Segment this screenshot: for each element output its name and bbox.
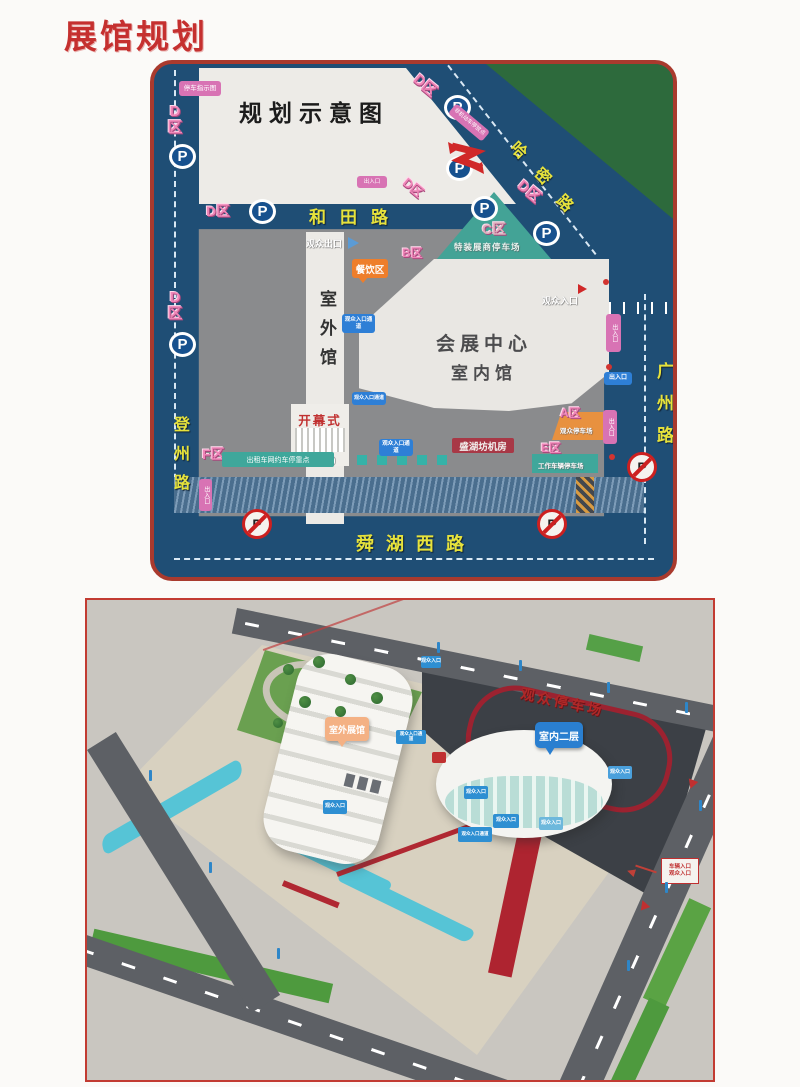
street-parking-band: [174, 477, 644, 513]
entrance-flag-icon: [578, 284, 587, 294]
outdoor-hall-bubble-tail: [337, 740, 347, 747]
road-hami-char3: 路: [552, 188, 580, 216]
indoor-hall-bubble: 室内二层: [535, 722, 583, 748]
gate-tag: 观众入口: [608, 766, 632, 779]
light-pole: [627, 960, 630, 971]
light-pole: [277, 948, 280, 959]
entrance-sign: 车辆入口 观众入口: [661, 858, 699, 884]
verge-green: [586, 634, 643, 662]
road-hami-char1: 哈: [506, 135, 534, 163]
signal-dot: [603, 279, 609, 285]
light-pole: [685, 702, 688, 713]
visitor-exit-label: 观众出口: [306, 237, 342, 250]
entry-channel-tag: 观众入口通道: [352, 392, 386, 405]
schematic-map: 规划示意图 C区 特装展商停车场 室外馆 会展中心 室内馆 开幕式 餐饮区 盛湖…: [150, 60, 677, 581]
light-pole: [209, 862, 212, 873]
gate-tag: 观众入口通道: [396, 730, 426, 744]
tree-icon: [313, 656, 325, 668]
gate-tag-label: 观众入口: [325, 804, 345, 810]
zone-d-label: D区: [167, 290, 183, 322]
zone-a-desc: 观众停车场: [560, 425, 593, 435]
plan-title: 规划示意图: [239, 94, 389, 128]
zone-c-desc: 特装展商停车场: [454, 241, 521, 253]
signal-dot: [606, 364, 612, 370]
convention-center-label: 会展中心 室内馆: [409, 329, 559, 384]
booth-square: [417, 455, 427, 465]
no-parking-icon: P: [537, 509, 567, 539]
no-parking-letter: P: [252, 516, 261, 532]
zone-a-label: A区: [560, 407, 581, 420]
road-shunhu-label: 舜湖西路: [356, 530, 476, 556]
tree-icon: [283, 664, 294, 675]
gate-tag-label: 观众入口: [610, 770, 630, 776]
tree-icon: [273, 718, 283, 728]
catering-tag-tail: [358, 277, 368, 283]
gate-tag: 观众入口通道: [458, 827, 492, 842]
parking-map-tag-label: 停车指示图: [184, 85, 217, 92]
light-pole: [665, 882, 668, 893]
zone-e-label: E区: [541, 442, 561, 455]
gate-tag: 观众入口: [464, 786, 488, 799]
entry-channel-tag: 观众入口通道: [379, 439, 413, 456]
entry-channel-tag: 观众入口通道: [342, 314, 375, 333]
access-tag-label: 出入口: [607, 418, 614, 436]
outdoor-hall-bubble: 室外展馆: [325, 717, 369, 741]
zone-d-label: D区: [167, 104, 183, 136]
access-tag-label: 出入口: [610, 324, 617, 342]
zone-b-label: B区: [402, 247, 423, 260]
light-pole: [437, 642, 440, 653]
zone-f-desc: 出租车网约车停靠点: [247, 455, 310, 465]
entry-channel-label: 观众入口通道: [354, 396, 384, 402]
access-tag-blue: 出入口: [604, 372, 632, 385]
gate-tag-label: 观众入口通道: [460, 832, 490, 837]
visitor-entrance-label: 观众入口: [542, 294, 578, 307]
opening-label: 开幕式: [291, 410, 349, 429]
parking-icon: P: [249, 199, 276, 224]
road-hetian-label: 和田路: [309, 203, 402, 228]
crosswalk: [576, 477, 594, 513]
gate-tag-label: 观众入口: [496, 818, 516, 824]
access-tag: 出入口: [606, 314, 621, 352]
parking-ticks: [609, 302, 677, 314]
road-guangzhou-label: 广州路: [651, 362, 676, 458]
gate-tag: 观众入口: [539, 817, 563, 830]
gate-tag-red: [432, 752, 446, 763]
tree-icon: [299, 696, 311, 708]
booth-square: [377, 455, 387, 465]
tree-icon: [345, 674, 356, 685]
light-pole: [519, 660, 522, 671]
signal-dot: [609, 454, 615, 460]
indoor-hall-bubble-tail: [545, 747, 555, 755]
outdoor-hall-label: 室外馆: [314, 290, 339, 377]
parking-band-tag-label: 出入口: [202, 486, 209, 504]
entrance-sign-line1: 车辆入口: [669, 864, 691, 871]
entry-channel-label: 观众入口通道: [345, 317, 373, 330]
tree-icon: [371, 692, 383, 704]
two-way-arrow-icon: [446, 142, 486, 178]
gate-tag: 观众入口: [323, 800, 347, 814]
parking-icon: P: [533, 221, 560, 246]
booth-square: [397, 455, 407, 465]
convention-center-line1: 会展中心: [409, 329, 559, 356]
no-parking-icon: P: [242, 509, 272, 539]
outdoor-hall-bubble-label: 室外展馆: [329, 723, 365, 736]
no-parking-letter: P: [547, 516, 556, 532]
tree-icon: [335, 706, 346, 717]
access-tag-label: 出入口: [364, 179, 381, 185]
zone-d-label: D区: [206, 204, 230, 219]
gate-tag-label: 观众入口通道: [398, 732, 424, 742]
light-pole: [607, 682, 610, 693]
light-pole: [699, 800, 702, 811]
indoor-hall-bubble-label: 室内二层: [539, 728, 579, 743]
gate-tag-label: 观众入口: [421, 659, 441, 665]
no-parking-letter: P: [637, 459, 646, 475]
shenghufang-banner: 盛湖坊机房: [452, 438, 514, 453]
gate-tag: 观众入口: [421, 656, 441, 668]
parking-icon: P: [169, 332, 196, 357]
catering-label: 餐饮区: [356, 262, 385, 276]
opening-hatch: [295, 428, 345, 452]
aerial-render: 室外展馆 室内二层 观众停车场 观众入口 观众入口通道 观众入口 观众入口 观众…: [85, 598, 715, 1082]
gate-tag: 观众入口: [493, 814, 519, 828]
light-pole: [149, 770, 152, 781]
shenghufang-label: 盛湖坊机房: [459, 439, 507, 453]
parking-band-tag: 出入口: [199, 479, 212, 511]
booth-square: [357, 455, 367, 465]
parking-map-tag: 停车指示图: [179, 81, 221, 96]
booth-square: [437, 455, 447, 465]
gate-tag-label: 观众入口: [541, 821, 561, 827]
access-tag: 出入口: [357, 176, 387, 188]
entrance-sign-line2: 观众入口: [669, 871, 691, 878]
lane-dash-right-road: [644, 294, 646, 544]
gate-tag-label: 观众入口: [466, 790, 486, 796]
road-dengzhou-label: 登州路: [167, 416, 191, 503]
zone-f-area: 出租车网约车停靠点: [222, 452, 334, 467]
exit-arrow-icon: [348, 237, 359, 249]
access-tag: 出入口: [603, 410, 617, 444]
parking-icon: P: [169, 144, 196, 169]
page-title: 展馆规划: [64, 10, 208, 58]
zone-e-desc: 工作车辆停车场: [538, 460, 584, 470]
zone-c-label: C区: [482, 222, 506, 237]
access-tag-label: 出入口: [609, 375, 627, 382]
catering-tag: 餐饮区: [352, 259, 388, 278]
lane-dash-bottom-road: [174, 558, 654, 560]
parking-icon: P: [471, 196, 498, 221]
entry-channel-label: 观众入口通道: [381, 441, 411, 454]
round-building-glass: [445, 776, 603, 828]
no-parking-icon: P: [627, 452, 657, 482]
convention-center-line2: 室内馆: [409, 359, 559, 384]
